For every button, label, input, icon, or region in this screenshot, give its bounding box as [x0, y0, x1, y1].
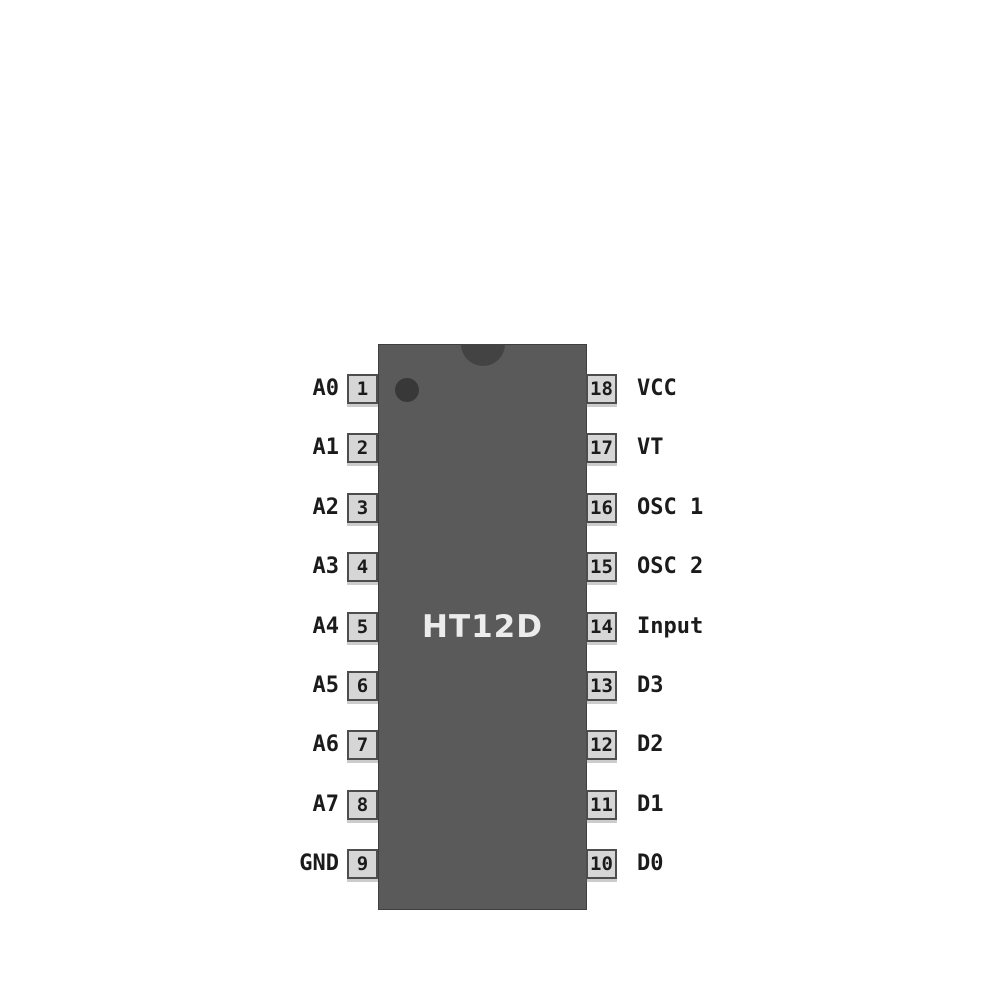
pin-row-18: 18 VCC [0, 374, 1000, 404]
pin-row-13: 13 D3 [0, 671, 1000, 701]
pin-row-12: 12 D2 [0, 730, 1000, 760]
pin-number-box-12: 12 [586, 730, 617, 760]
pinout-diagram: HT12D A0 1 A1 2 A2 3 A3 4 A4 5 A5 6 A6 7… [0, 0, 1000, 1000]
pin-row-17: 17 VT [0, 433, 1000, 463]
pin-row-16: 16 OSC 1 [0, 493, 1000, 523]
pin-number-box-14: 14 [586, 612, 617, 642]
pin-number-box-18: 18 [586, 374, 617, 404]
pin-label-osc1: OSC 1 [637, 493, 703, 523]
pin-label-input: Input [637, 612, 703, 642]
pin-row-15: 15 OSC 2 [0, 552, 1000, 582]
pin-number-box-16: 16 [586, 493, 617, 523]
pin-number-box-13: 13 [586, 671, 617, 701]
pin-row-11: 11 D1 [0, 790, 1000, 820]
pin-number-box-17: 17 [586, 433, 617, 463]
pin-label-vcc: VCC [637, 374, 677, 404]
pin-row-10: 10 D0 [0, 849, 1000, 879]
pin-row-14: 14 Input [0, 612, 1000, 642]
pin-label-vt: VT [637, 433, 664, 463]
pin-label-osc2: OSC 2 [637, 552, 703, 582]
pin-number-box-10: 10 [586, 849, 617, 879]
pin-label-d0: D0 [637, 849, 664, 879]
orientation-notch-icon [461, 344, 505, 366]
pin-number-box-11: 11 [586, 790, 617, 820]
pin-label-d3: D3 [637, 671, 664, 701]
pin-number-box-15: 15 [586, 552, 617, 582]
pin-label-d1: D1 [637, 790, 664, 820]
pin-label-d2: D2 [637, 730, 664, 760]
